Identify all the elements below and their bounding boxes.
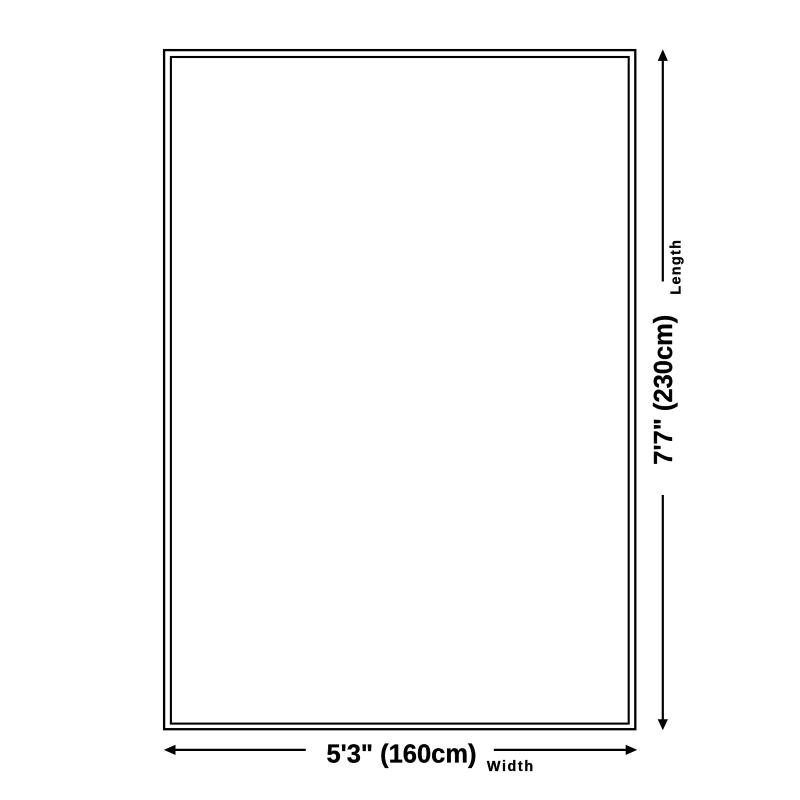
svg-text:5'3" (160cm): 5'3" (160cm) bbox=[327, 740, 477, 768]
svg-text:Width: Width bbox=[487, 759, 535, 775]
svg-text:Length: Length bbox=[669, 239, 685, 295]
svg-text:7'7" (230cm): 7'7" (230cm) bbox=[650, 315, 678, 465]
